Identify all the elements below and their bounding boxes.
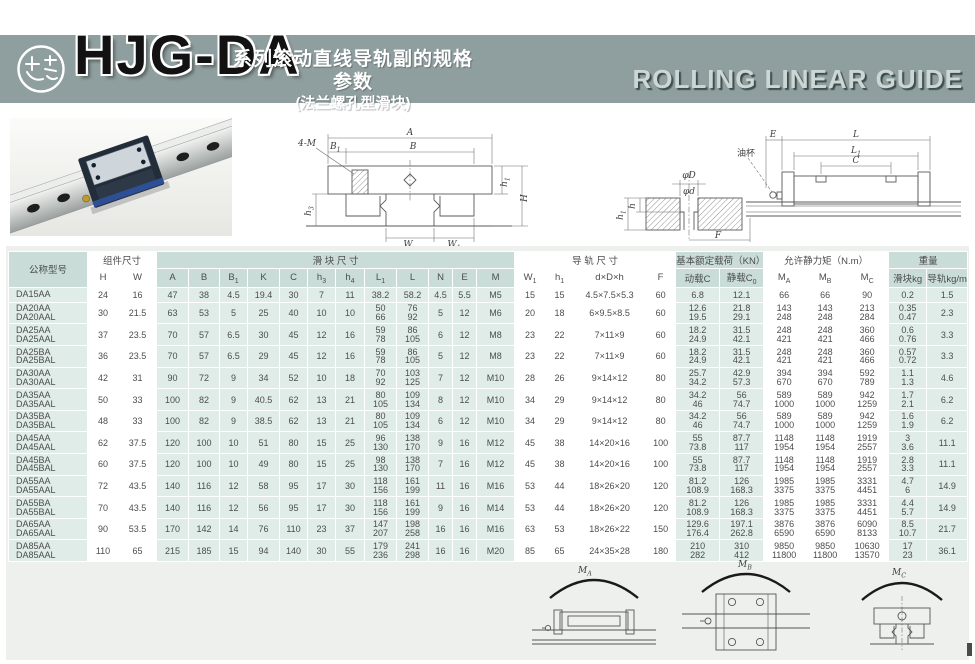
value-cell: 140 (157, 497, 188, 518)
value-cell: M10 (477, 389, 514, 410)
model-cell: DA30AADA30AAL (9, 368, 87, 389)
value-cell: 49 (248, 454, 279, 475)
value-cell: 51 (248, 432, 279, 453)
value-cell: 161199 (397, 497, 428, 518)
value-cell: 47 (157, 288, 188, 302)
value-cell: M5 (477, 288, 514, 302)
catalog-page: HJG-DA 系列滚动直线导轨副的规格参数 (法兰螺孔型滑块) ROLLING … (0, 0, 975, 664)
value-cell: 1.61.9 (889, 411, 926, 432)
value-cell: 29 (546, 389, 573, 410)
value-cell: 0.570.72 (889, 346, 926, 367)
value-cell: 57 (189, 346, 219, 367)
value-cell: 23.5 (119, 324, 156, 345)
value-cell: 25.734.2 (676, 368, 719, 389)
column-header: N (429, 269, 452, 287)
value-cell: 5891000 (764, 411, 804, 432)
value-cell: 100 (189, 432, 219, 453)
value-cell: 100 (157, 411, 188, 432)
value-cell: 4.5 (220, 288, 247, 302)
value-cell: 7692 (397, 303, 428, 324)
front-view-diagram: 4-M A B B1 h1 H h3 W W1 (250, 114, 570, 248)
value-cell: 120 (646, 497, 675, 518)
value-cell: 5.5 (453, 288, 476, 302)
value-cell: 48 (88, 411, 118, 432)
value-cell: 7092 (365, 368, 396, 389)
value-cell: 82 (189, 411, 219, 432)
column-header: C (280, 269, 307, 287)
value-cell: 6 (429, 411, 452, 432)
value-cell: 9421259 (846, 411, 888, 432)
product-photo (10, 118, 232, 236)
value-cell: 7 (429, 454, 452, 475)
value-cell: 90 (88, 519, 118, 540)
table-row: DA30AADA30AAL423190729345210187092103125… (9, 368, 967, 389)
column-header: MA (764, 269, 804, 287)
value-cell: 16 (119, 288, 156, 302)
value-cell: 19853375 (764, 476, 804, 497)
value-cell: 30 (308, 540, 335, 561)
value-cell: 90 (157, 368, 188, 389)
value-cell: 8 (429, 389, 452, 410)
value-cell: 9×14×12 (574, 389, 645, 410)
value-cell: 53 (515, 476, 545, 497)
table-row: DA35BADA35BAL483310082938.56213218010510… (9, 411, 967, 432)
value-cell: 57 (189, 324, 219, 345)
value-cell: 9 (429, 432, 452, 453)
model-cell: DA45BADA45BAL (9, 454, 87, 475)
value-cell: 14×20×16 (574, 454, 645, 475)
value-cell: 12.619.5 (676, 303, 719, 324)
value-cell: 5 (220, 303, 247, 324)
value-cell: 65 (119, 540, 156, 561)
value-cell: 38 (546, 454, 573, 475)
dim-label-phid: φd (683, 187, 695, 197)
value-cell: 25 (336, 432, 364, 453)
value-cell: 143248 (764, 303, 804, 324)
header-english-title: ROLLING LINEAR GUIDE (632, 64, 963, 95)
value-cell: 12 (453, 303, 476, 324)
value-cell: 22 (546, 346, 573, 367)
value-cell: 213284 (846, 303, 888, 324)
value-cell: 63 (157, 303, 188, 324)
column-header: 导轨kg/m (927, 269, 967, 287)
value-cell: 81.2108.9 (676, 476, 719, 497)
value-cell: 109134 (397, 411, 428, 432)
value-cell: 80105 (365, 389, 396, 410)
value-cell: 33314451 (846, 497, 888, 518)
value-cell: 11.1 (927, 432, 967, 453)
dim-label-a: A (406, 128, 414, 138)
value-cell: 120 (157, 454, 188, 475)
value-cell: 53 (189, 303, 219, 324)
value-cell: 37 (336, 519, 364, 540)
value-cell: 45 (280, 346, 307, 367)
dim-label-b1: B1 (329, 142, 341, 154)
moment-ma-label: MA (577, 566, 592, 578)
value-cell: 21.7 (927, 519, 967, 540)
value-cell: 5 (429, 303, 452, 324)
dim-label-f: F (714, 231, 722, 241)
value-cell: 6.5 (220, 346, 247, 367)
value-cell: 126168.3 (720, 476, 763, 497)
value-cell: 80 (280, 432, 307, 453)
value-cell: 12 (453, 411, 476, 432)
value-cell: 21 (336, 389, 364, 410)
column-header: h4 (336, 269, 364, 287)
dim-label-l: L (852, 130, 859, 140)
value-cell: 11481954 (805, 432, 845, 453)
column-header: W1 (515, 269, 545, 287)
value-cell: 5891000 (805, 389, 845, 410)
value-cell: 34 (248, 368, 279, 389)
value-cell: 29 (546, 411, 573, 432)
value-cell: 17 (308, 497, 335, 518)
value-cell: 56 (248, 497, 279, 518)
table-row: DA85AADA85AAL110652151851594140305517923… (9, 540, 967, 561)
value-cell: 12 (308, 346, 335, 367)
value-cell: 9 (220, 411, 247, 432)
value-cell: 21.829.1 (720, 303, 763, 324)
value-cell: 34.246 (676, 411, 719, 432)
value-cell: 7×11×9 (574, 346, 645, 367)
value-cell: 23 (515, 346, 545, 367)
value-cell: M16 (477, 476, 514, 497)
value-cell: 60 (646, 324, 675, 345)
value-cell: 11 (429, 476, 452, 497)
value-cell: 4.5 (429, 288, 452, 302)
value-cell: 6.2 (927, 389, 967, 410)
value-cell: 30 (88, 303, 118, 324)
value-cell: 36 (88, 346, 118, 367)
value-cell: 70 (157, 346, 188, 367)
value-cell: 19.4 (248, 288, 279, 302)
value-cell: 90 (846, 288, 888, 302)
value-cell: 13 (308, 411, 335, 432)
value-cell: 95 (280, 476, 307, 497)
value-cell: 13 (308, 389, 335, 410)
dim-label-h: H (520, 194, 530, 203)
value-cell: 5573.8 (676, 432, 719, 453)
value-cell: 2.3 (927, 303, 967, 324)
value-cell: 394670 (764, 368, 804, 389)
value-cell: 10 (220, 432, 247, 453)
value-cell: 33 (119, 389, 156, 410)
table-row: DA15AA241647384.519.43071138.258.24.55.5… (9, 288, 967, 302)
model-cell: DA20AADA20AAL (9, 303, 87, 324)
value-cell: 4.5×7.5×5.3 (574, 288, 645, 302)
column-group: 滑 块 尺 寸 (157, 252, 514, 268)
value-cell: 5066 (365, 303, 396, 324)
value-cell: 16 (453, 432, 476, 453)
value-cell: 9 (220, 389, 247, 410)
value-cell: 9×14×12 (574, 368, 645, 389)
column-header: MC (846, 269, 888, 287)
value-cell: 60 (88, 454, 118, 475)
value-cell: 19192557 (846, 454, 888, 475)
value-cell: 179236 (365, 540, 396, 561)
column-header: MB (805, 269, 845, 287)
value-cell: 80105 (365, 411, 396, 432)
value-cell: 9 (220, 368, 247, 389)
model-cell: DA15AA (9, 288, 87, 302)
value-cell: 23 (308, 519, 335, 540)
value-cell: 43.5 (119, 497, 156, 518)
table-row: DA25AADA25AAL3723.570576.530451216597886… (9, 324, 967, 345)
value-cell: 87.7117 (720, 454, 763, 475)
value-cell: 52 (280, 368, 307, 389)
value-cell: 30 (336, 497, 364, 518)
value-cell: 44 (546, 476, 573, 497)
value-cell: M12 (477, 454, 514, 475)
value-cell: 70 (88, 497, 118, 518)
value-cell: 37.5 (119, 432, 156, 453)
value-cell: 16 (429, 540, 452, 561)
value-cell: 38.5 (248, 411, 279, 432)
value-cell: 24 (88, 288, 118, 302)
table-row: DA25BADA25BAL3623.570576.529451216597886… (9, 346, 967, 367)
value-cell: 5891000 (805, 411, 845, 432)
value-cell: 248421 (764, 324, 804, 345)
column-header: E (453, 269, 476, 287)
column-header: K (248, 269, 279, 287)
value-cell: 15 (220, 540, 247, 561)
value-cell: 3.3 (927, 324, 967, 345)
value-cell: 23 (515, 324, 545, 345)
value-cell: 30 (336, 476, 364, 497)
table-row: DA45BADA45BAL6037.5120100104980152598130… (9, 454, 967, 475)
column-header: h3 (308, 269, 335, 287)
value-cell: 16 (453, 540, 476, 561)
value-cell: 18 (336, 368, 364, 389)
value-cell: 100 (157, 389, 188, 410)
value-cell: 140 (157, 476, 188, 497)
model-cell: DA25BADA25BAL (9, 346, 87, 367)
brand-logo-icon (14, 42, 68, 96)
value-cell: 95 (280, 497, 307, 518)
value-cell: 110 (280, 519, 307, 540)
value-cell: 21 (336, 411, 364, 432)
table-row: DA55BADA55BAL7043.5140116125695173011815… (9, 497, 967, 518)
model-cell: DA25AADA25AAL (9, 324, 87, 345)
value-cell: 19853375 (805, 476, 845, 497)
column-header: W (119, 269, 156, 287)
value-cell: 12 (453, 389, 476, 410)
value-cell: M8 (477, 346, 514, 367)
column-group: 允许静力矩（N.m） (764, 252, 888, 268)
value-cell: 18×26×20 (574, 497, 645, 518)
value-cell: 87.7117 (720, 432, 763, 453)
value-cell: 38766590 (764, 519, 804, 540)
value-cell: 4.6 (927, 368, 967, 389)
value-cell: 38.2 (365, 288, 396, 302)
value-cell: M10 (477, 368, 514, 389)
value-cell: 18.224.9 (676, 324, 719, 345)
value-cell: 6.8 (676, 288, 719, 302)
value-cell: 248421 (805, 324, 845, 345)
value-cell: 31.542.1 (720, 324, 763, 345)
model-cell: DA35BADA35BAL (9, 411, 87, 432)
value-cell: 6 (429, 324, 452, 345)
value-cell: M20 (477, 540, 514, 561)
dim-label-h3: h3 (304, 206, 316, 216)
table-row: DA65AADA65AAL9053.5170142147611023371472… (9, 519, 967, 540)
table-row: DA55AADA55AAL7243.5140116125895173011815… (9, 476, 967, 497)
side-view-diagram: φD φd h h1 F E L L1 C 油杯 (616, 112, 964, 247)
moment-mb-label: MB (737, 560, 752, 572)
value-cell: 14.9 (927, 476, 967, 497)
value-cell: 592789 (846, 368, 888, 389)
value-cell: 6×9.5×8.5 (574, 303, 645, 324)
value-cell: 14×20×16 (574, 432, 645, 453)
value-cell: 116 (189, 476, 219, 497)
dim-label-e: E (769, 130, 777, 140)
value-cell: 72 (189, 368, 219, 389)
value-cell: 1.5 (927, 288, 967, 302)
value-cell: 5674.7 (720, 411, 763, 432)
value-cell: 138170 (397, 454, 428, 475)
value-cell: M8 (477, 324, 514, 345)
value-cell: 43.5 (119, 476, 156, 497)
value-cell: 20 (515, 303, 545, 324)
column-header: 动载C (676, 269, 719, 287)
value-cell: 94 (248, 540, 279, 561)
moment-mc-diagram: MC (836, 556, 968, 658)
value-cell: 11481954 (805, 454, 845, 475)
value-cell: 72 (88, 476, 118, 497)
spec-table: 公称型号组件尺寸滑 块 尺 寸导 轨 尺 寸基本额定载荷（KN）允许静力矩（N.… (8, 251, 968, 562)
value-cell: 140 (280, 540, 307, 561)
value-cell: 60 (646, 303, 675, 324)
value-cell: 45 (280, 324, 307, 345)
column-group: 组件尺寸 (88, 252, 156, 268)
value-cell: 86105 (397, 346, 428, 367)
column-header: M (477, 269, 514, 287)
value-cell: 70 (157, 324, 188, 345)
dim-label-4m: 4-M (297, 139, 317, 149)
value-cell: 80 (280, 454, 307, 475)
value-cell: 11.1 (927, 454, 967, 475)
value-cell: 16 (336, 324, 364, 345)
value-cell: 63 (515, 519, 545, 540)
subtitle-line1: 系列滚动直线导轨副的规格参数 (228, 48, 478, 94)
value-cell: 248421 (805, 346, 845, 367)
value-cell: 9421259 (846, 389, 888, 410)
value-cell: 42 (88, 368, 118, 389)
value-cell: 33.6 (889, 432, 926, 453)
value-cell: 15 (515, 288, 545, 302)
value-cell: 198258 (397, 519, 428, 540)
value-cell: 55 (336, 540, 364, 561)
value-cell: 34.246 (676, 389, 719, 410)
value-cell: 138170 (397, 432, 428, 453)
value-cell: 81.2108.9 (676, 497, 719, 518)
value-cell: 360466 (846, 324, 888, 345)
value-cell: 60 (646, 346, 675, 367)
value-cell: 170 (157, 519, 188, 540)
value-cell: 50 (88, 389, 118, 410)
value-cell: 38 (189, 288, 219, 302)
value-cell: 100 (189, 454, 219, 475)
model-cell: DA55BADA55BAL (9, 497, 87, 518)
value-cell: 80 (646, 411, 675, 432)
dim-label-rail-h1: h1 (616, 210, 628, 220)
value-cell: 16 (453, 497, 476, 518)
value-cell: 118156 (365, 497, 396, 518)
value-cell: 15 (308, 454, 335, 475)
value-cell: 14.9 (927, 497, 967, 518)
value-cell: 19853375 (764, 497, 804, 518)
value-cell: 31 (119, 368, 156, 389)
value-cell: 40.5 (248, 389, 279, 410)
value-cell: 3.3 (927, 346, 967, 367)
value-cell: 12 (220, 497, 247, 518)
value-cell: 11481954 (764, 432, 804, 453)
value-cell: 96130 (365, 432, 396, 453)
model-cell: DA85AADA85AAL (9, 540, 87, 561)
value-cell: 53 (515, 497, 545, 518)
value-cell: 150 (646, 519, 675, 540)
value-cell: 62 (280, 411, 307, 432)
value-cell: 28 (515, 368, 545, 389)
value-cell: 29 (248, 346, 279, 367)
column-header: B (189, 269, 219, 287)
value-cell: 37.5 (119, 454, 156, 475)
value-cell: 241298 (397, 540, 428, 561)
value-cell: 16 (429, 519, 452, 540)
value-cell: 8.510.7 (889, 519, 926, 540)
value-cell: 394670 (805, 368, 845, 389)
moment-ma-diagram: MA (528, 556, 660, 658)
value-cell: 38 (546, 432, 573, 453)
value-cell: 360466 (846, 346, 888, 367)
column-header: L (397, 269, 428, 287)
value-cell: 197.1262.8 (720, 519, 763, 540)
value-cell: 38766590 (805, 519, 845, 540)
value-cell: 33 (119, 411, 156, 432)
value-cell: 7 (308, 288, 335, 302)
value-cell: 9×14×12 (574, 411, 645, 432)
column-header: B1 (220, 269, 247, 287)
value-cell: 33314451 (846, 476, 888, 497)
value-cell: 76 (248, 519, 279, 540)
value-cell: 12 (453, 324, 476, 345)
value-cell: 12 (453, 346, 476, 367)
value-cell: 19853375 (805, 497, 845, 518)
value-cell: 16 (453, 519, 476, 540)
value-cell: 62 (88, 432, 118, 453)
value-cell: 23.5 (119, 346, 156, 367)
value-cell: 18 (546, 303, 573, 324)
value-cell: 15 (546, 288, 573, 302)
moment-mb-diagram: MB (680, 552, 812, 660)
value-cell: 30 (280, 288, 307, 302)
value-cell: 215 (157, 540, 188, 561)
value-cell: 10 (308, 303, 335, 324)
dim-label-hole-h: h (628, 203, 638, 209)
page-subtitle: 系列滚动直线导轨副的规格参数 (法兰螺孔型滑块) (228, 48, 478, 113)
value-cell: 142 (189, 519, 219, 540)
value-cell: 19192557 (846, 432, 888, 453)
value-cell: 45 (515, 454, 545, 475)
value-cell: 12 (220, 476, 247, 497)
value-cell: 34 (515, 411, 545, 432)
value-cell: 9 (429, 497, 452, 518)
value-cell: 12 (308, 324, 335, 345)
value-cell: 16 (336, 346, 364, 367)
value-cell: 16 (453, 476, 476, 497)
value-cell: 248421 (764, 346, 804, 367)
column-group: 基本额定载荷（KN） (676, 252, 763, 268)
